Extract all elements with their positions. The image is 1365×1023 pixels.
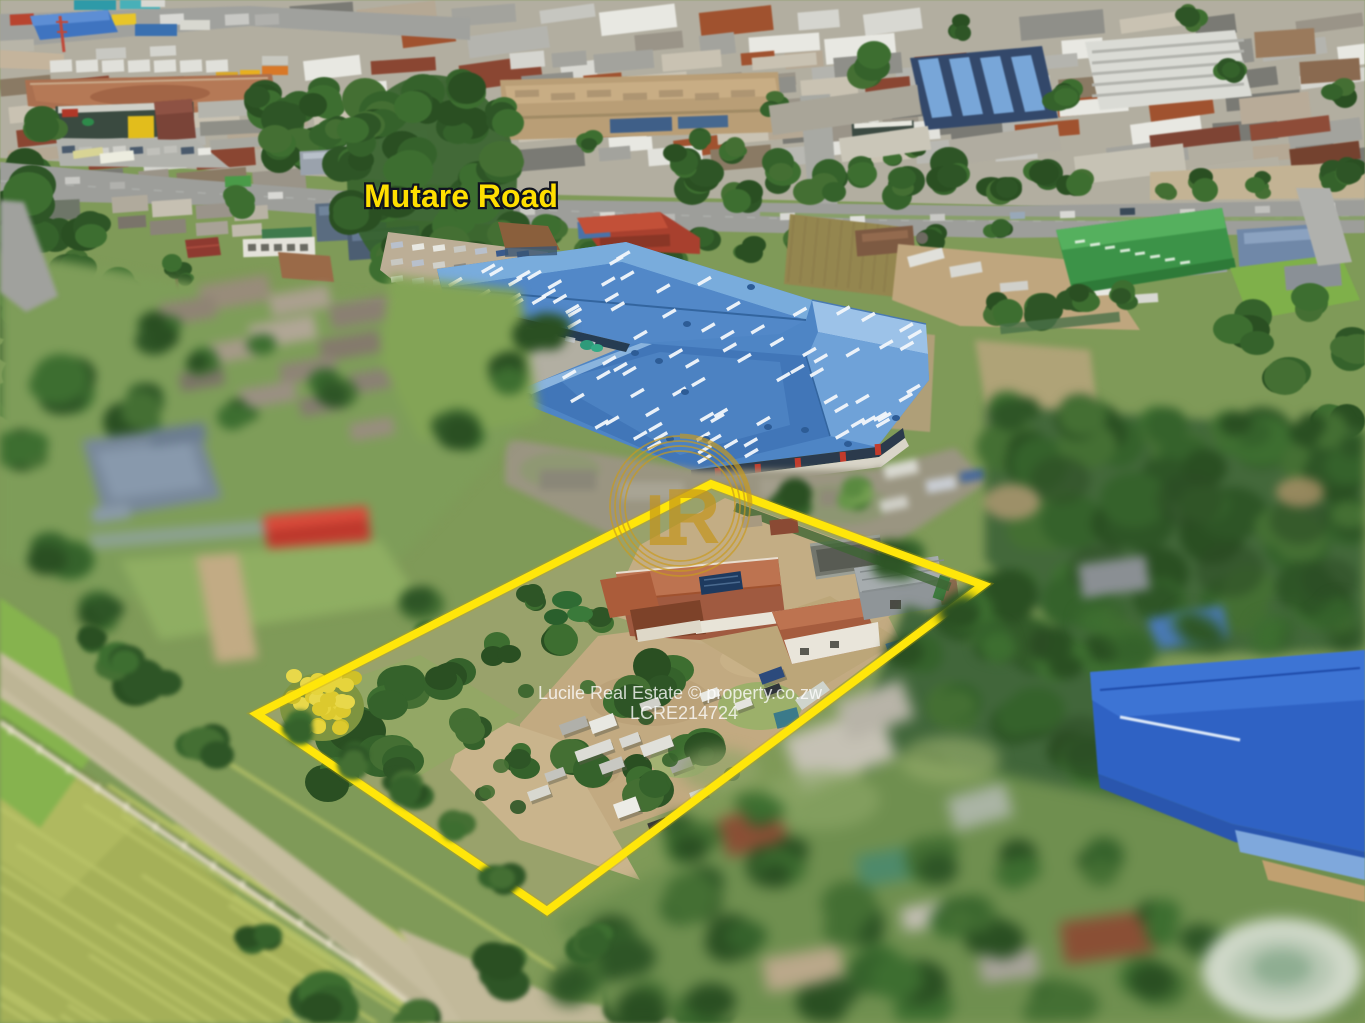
svg-text:LCRE214724: LCRE214724 [630, 703, 738, 723]
svg-text:Lucile Real Estate © property.: Lucile Real Estate © property.co.zw [538, 683, 823, 703]
